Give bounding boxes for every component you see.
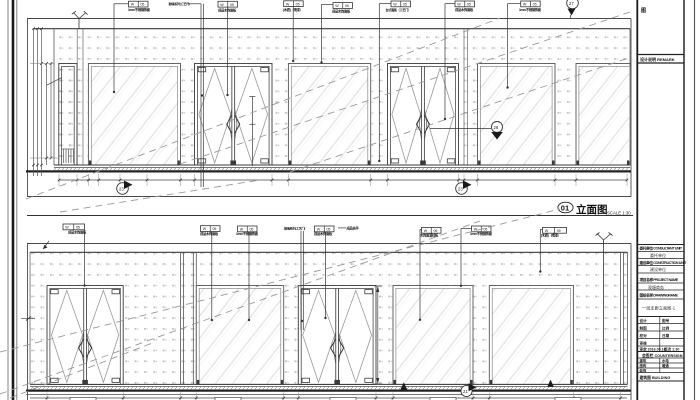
svg-text:一层走廊立面图-1: 一层走廊立面图-1: [642, 305, 676, 312]
svg-text:W: W: [335, 4, 339, 8]
svg-text:SCALE 1:30: SCALE 1:30: [607, 210, 631, 215]
svg-text:05: 05: [467, 3, 471, 7]
svg-text:05: 05: [345, 4, 349, 8]
svg-text:比例: 比例: [662, 326, 670, 331]
svg-text:玻璃系列(工艺门): 玻璃系列(工艺门): [284, 226, 305, 231]
svg-text:项目名称 PROJECT NAME: 项目名称 PROJECT NAME: [639, 277, 679, 282]
svg-text:设计: 设计: [640, 318, 648, 323]
svg-text:1mm不锈钢饰面: 1mm不锈钢饰面: [236, 231, 259, 236]
svg-text:审定 2016.05.16: 审定 2016.05.16: [640, 347, 666, 352]
svg-text:W: W: [523, 3, 527, 7]
svg-text:05: 05: [249, 228, 253, 232]
svg-text:成品木饰面板: 成品木饰面板: [200, 231, 219, 236]
svg-text:建筑图 BUILDING: 建筑图 BUILDING: [639, 375, 671, 380]
svg-text:会签栏 COUNTERSIGN: 会签栏 COUNTERSIGN: [642, 353, 683, 358]
svg-text:(木质)（喷漆）: (木质)（喷漆）: [283, 7, 303, 12]
svg-text:27: 27: [569, 1, 574, 6]
svg-text:1mm不锈钢饰面: 1mm不锈钢饰面: [470, 231, 493, 236]
svg-text:05: 05: [557, 229, 561, 233]
svg-text:立面图: 立面图: [576, 203, 608, 216]
svg-text:W: W: [220, 3, 224, 7]
svg-text:W: W: [317, 228, 321, 232]
svg-text:结构: 结构: [640, 363, 647, 368]
svg-text:1mm不锈钢饰面: 1mm不锈钢饰面: [128, 7, 151, 12]
svg-text:图: 图: [641, 7, 646, 14]
svg-text:审核: 审核: [640, 341, 648, 346]
svg-text:23: 23: [458, 186, 463, 191]
svg-text:台式面板（工艺门）: 台式面板（工艺门）: [386, 7, 411, 12]
svg-text:玻璃系列(工艺门): 玻璃系列(工艺门): [169, 1, 190, 6]
svg-text:建设单位: 建设单位: [650, 266, 666, 272]
svg-text:05: 05: [533, 3, 537, 7]
svg-text:05: 05: [76, 226, 80, 230]
svg-text:W: W: [131, 3, 135, 7]
svg-text:01: 01: [561, 203, 569, 212]
svg-text:成品扶手: 成品扶手: [347, 226, 360, 231]
svg-text:委托单位: 委托单位: [650, 252, 666, 258]
svg-text:成品木饰面板: 成品木饰面板: [455, 7, 474, 12]
svg-text:05: 05: [296, 2, 300, 6]
svg-text:W: W: [65, 226, 69, 230]
svg-text:05: 05: [433, 229, 437, 233]
svg-text:图纸名称 DRAWINGNAME: 图纸名称 DRAWINGNAME: [640, 293, 679, 298]
svg-text:观塘商务: 观塘商务: [648, 284, 664, 290]
svg-text:05: 05: [212, 227, 216, 231]
svg-text:1mm不锈钢饰面: 1mm不锈钢饰面: [519, 7, 542, 12]
svg-text:建筑: 建筑: [640, 358, 647, 363]
svg-text:W: W: [240, 228, 244, 232]
svg-text:水电: 水电: [661, 358, 669, 363]
svg-text:W: W: [545, 229, 549, 233]
svg-text:W: W: [393, 3, 397, 7]
svg-text:23: 23: [119, 186, 124, 191]
svg-text:图号: 图号: [662, 318, 670, 323]
svg-text:05: 05: [403, 3, 407, 7]
svg-text:05: 05: [483, 228, 487, 232]
svg-text:委托单位 CONSULTANT UNIT: 委托单位 CONSULTANT UNIT: [639, 246, 683, 251]
svg-text:日期: 日期: [662, 333, 670, 338]
svg-text:建设单位 CONSTRUCTION UNIT: 建设单位 CONSTRUCTION UNIT: [639, 260, 687, 265]
svg-text:W: W: [203, 227, 207, 231]
svg-text:05: 05: [230, 3, 234, 7]
svg-text:W: W: [424, 229, 428, 233]
svg-text:设计说明 REMARK: 设计说明 REMARK: [640, 56, 675, 62]
svg-text:校对: 校对: [640, 333, 648, 338]
svg-text:制图: 制图: [640, 326, 648, 331]
svg-text:成品木饰面板: 成品木饰面板: [314, 231, 333, 236]
svg-text:05: 05: [140, 3, 144, 7]
svg-text:05: 05: [326, 228, 330, 232]
svg-text:(木质)（喷漆）: (木质)（喷漆）: [541, 233, 561, 238]
svg-text:版次 1:30: 版次 1:30: [664, 347, 679, 352]
svg-text:W: W: [286, 2, 290, 6]
svg-text:W: W: [474, 228, 478, 232]
svg-text:W: W: [457, 3, 461, 7]
svg-text:暖通: 暖通: [662, 363, 669, 368]
svg-text:成品木饰面板: 成品木饰面板: [332, 9, 351, 14]
svg-text:21: 21: [463, 389, 468, 394]
svg-text:成品木饰面板: 成品木饰面板: [68, 230, 87, 235]
svg-text:26: 26: [494, 125, 499, 130]
svg-text:木饰面湿挂板: 木饰面湿挂板: [419, 233, 439, 238]
